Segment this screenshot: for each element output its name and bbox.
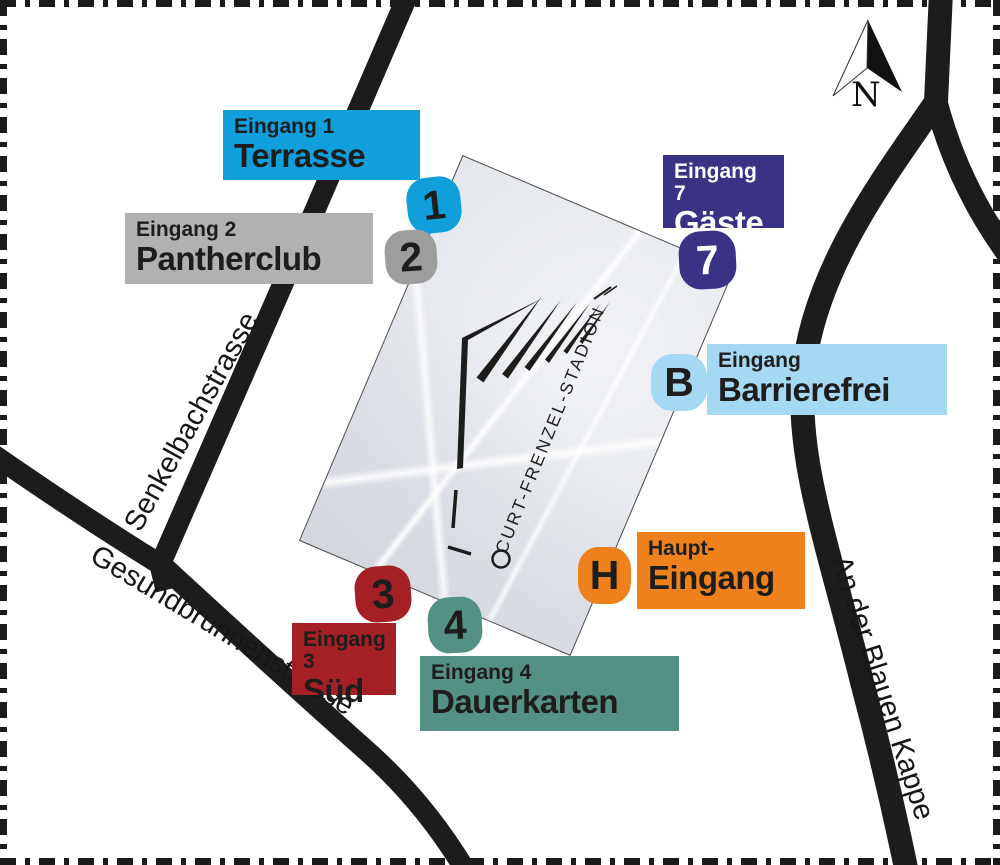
entrance-label-terrasse: Eingang 1 Terrasse xyxy=(223,110,420,180)
stadium-map: N CURT-FRENZEL-STADION Senkelbachstrasse… xyxy=(0,0,1000,865)
entrance-badge-B: B xyxy=(651,354,707,411)
entrance-label-line2: Süd xyxy=(303,674,386,707)
entrance-label-haupteingang: Haupt- Eingang xyxy=(637,532,805,609)
north-arrow-icon: N xyxy=(833,20,902,115)
entrance-badge-1: 1 xyxy=(404,174,464,235)
entrance-badge-7: 7 xyxy=(678,230,738,291)
road-senkelbachstrasse xyxy=(160,0,410,590)
entrance-label-sued: Eingang 3 Süd xyxy=(292,623,396,695)
entrance-label-line1: Eingang 7 xyxy=(674,161,774,205)
map-border-top xyxy=(0,0,1000,7)
entrance-label-line2: Pantherclub xyxy=(136,242,363,275)
road-fork-east xyxy=(936,102,1000,254)
compass-north-label: N xyxy=(851,75,881,115)
map-border-right xyxy=(993,0,1000,865)
entrance-label-barrierefrei: Eingang Barrierefrei xyxy=(707,344,947,415)
entrance-badge-2: 2 xyxy=(383,228,439,285)
entrance-label-line2: Terrasse xyxy=(234,139,410,172)
entrance-badge-3: 3 xyxy=(353,564,413,624)
entrance-label-line2: Barrierefrei xyxy=(718,373,937,406)
entrance-label-line1: Eingang 2 xyxy=(136,219,363,241)
entrance-badge-4: 4 xyxy=(427,596,484,655)
entrance-label-pantherclub: Eingang 2 Pantherclub xyxy=(125,213,373,284)
entrance-label-line2: Eingang xyxy=(648,561,795,594)
entrance-label-line1: Eingang 4 xyxy=(431,662,669,684)
road-an-der-blauen-kappe xyxy=(802,0,941,865)
entrance-label-gaeste: Eingang 7 Gäste xyxy=(663,155,784,228)
map-art: N CURT-FRENZEL-STADION xyxy=(0,0,1000,865)
entrance-label-line1: Eingang 3 xyxy=(303,629,386,673)
entrance-label-line1: Haupt- xyxy=(648,538,795,560)
entrance-label-line1: Eingang xyxy=(718,350,937,372)
entrance-label-line1: Eingang 1 xyxy=(234,116,410,138)
entrance-label-dauerkarten: Eingang 4 Dauerkarten xyxy=(420,656,679,731)
map-border-bottom xyxy=(0,858,1000,865)
entrance-label-line2: Dauerkarten xyxy=(431,685,669,718)
map-border-left xyxy=(0,0,7,865)
entrance-badge-H: H xyxy=(578,547,631,604)
